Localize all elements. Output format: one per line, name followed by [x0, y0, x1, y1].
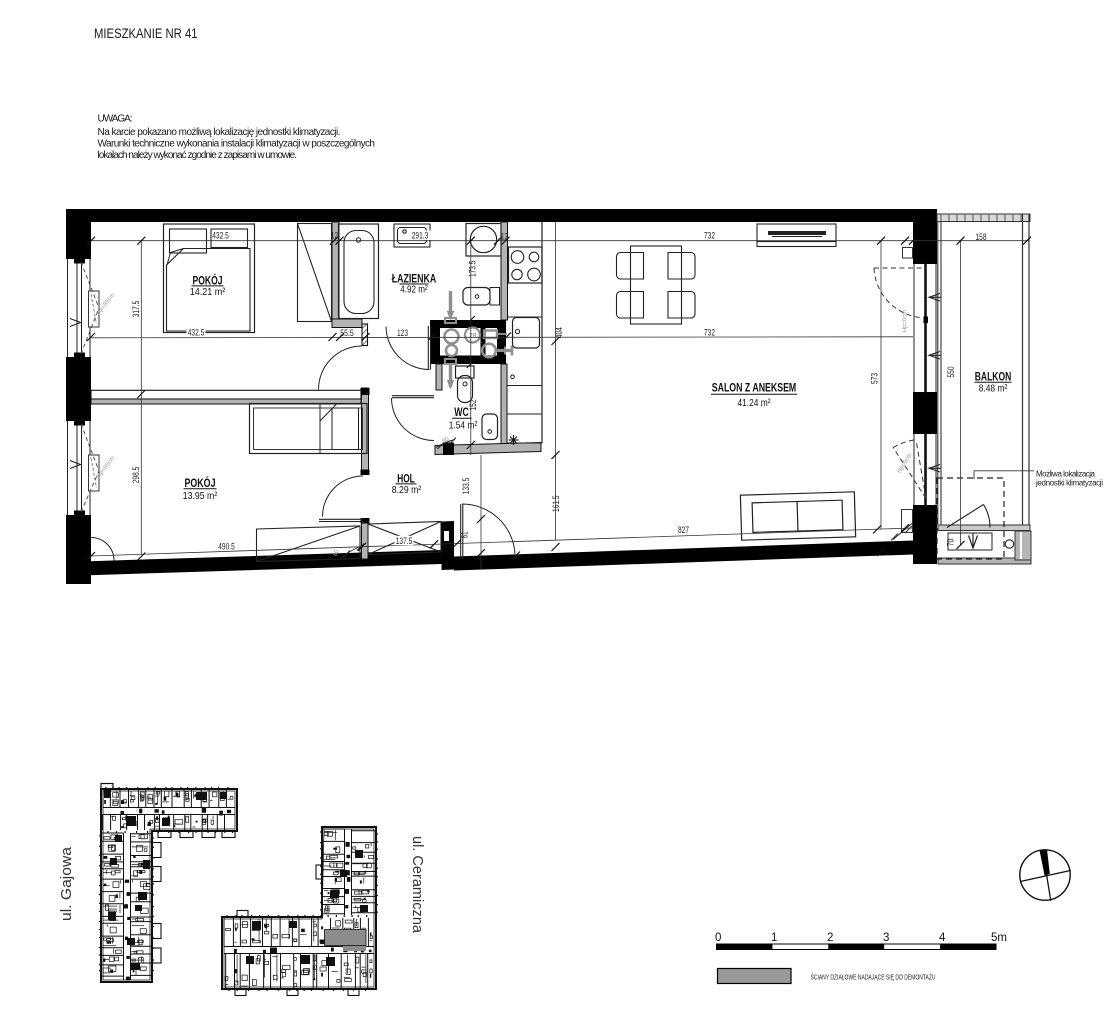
svg-text:137.5: 137.5 [396, 536, 413, 546]
svg-text:732: 732 [704, 328, 715, 338]
svg-text:732: 732 [704, 230, 715, 240]
svg-text:Na karcie pokazano możliwą lok: Na karcie pokazano możliwą lokalizację j… [98, 127, 341, 138]
svg-text:573: 573 [870, 373, 880, 384]
svg-text:12: 12 [331, 231, 338, 241]
svg-text:133.5: 133.5 [461, 478, 471, 495]
svg-text:70: 70 [946, 539, 956, 547]
svg-text:12: 12 [501, 232, 508, 242]
svg-text:41.24 m²: 41.24 m² [738, 397, 771, 409]
svg-text:158: 158 [976, 232, 987, 242]
svg-text:298.5: 298.5 [131, 467, 141, 484]
svg-text:3: 3 [883, 932, 889, 944]
svg-text:61: 61 [460, 532, 470, 539]
svg-text:4: 4 [939, 932, 946, 944]
svg-text:317.5: 317.5 [131, 301, 141, 318]
svg-text:UWAGA:: UWAGA: [98, 114, 133, 125]
svg-text:827: 827 [678, 525, 689, 535]
svg-text:5m: 5m [991, 932, 1007, 944]
svg-text:8.29 m²: 8.29 m² [392, 484, 422, 496]
svg-text:550: 550 [946, 367, 956, 378]
svg-text:1: 1 [771, 932, 777, 944]
svg-text:152: 152 [468, 400, 478, 411]
svg-text:ul. Gajowa: ul. Gajowa [59, 846, 75, 921]
svg-text:161.5: 161.5 [551, 495, 561, 512]
svg-text:ul. Ceramiczna: ul. Ceramiczna [409, 836, 425, 934]
svg-text:55.5: 55.5 [340, 328, 354, 338]
svg-text:432.5: 432.5 [212, 231, 229, 241]
svg-text:13.95 m²: 13.95 m² [183, 490, 218, 502]
svg-text:291.3: 291.3 [412, 231, 429, 241]
svg-text:14.21 m²: 14.21 m² [190, 286, 226, 298]
svg-text:29: 29 [469, 333, 477, 340]
svg-text:Hp=0cm: Hp=0cm [903, 310, 909, 333]
svg-text:MIESZKANIE NR 41: MIESZKANIE NR 41 [94, 26, 198, 41]
svg-text:ŚCIANY DZIAŁOWE NADAJĄCE SIĘ D: ŚCIANY DZIAŁOWE NADAJĄCE SIĘ DO DEMONTAŻ… [811, 973, 936, 982]
svg-text:4.92 m²: 4.92 m² [400, 284, 428, 296]
svg-text:lokalach należy wykonać zgodni: lokalach należy wykonać zgodnie z zapisa… [98, 150, 298, 161]
svg-text:432.5: 432.5 [188, 327, 205, 337]
svg-text:173.5: 173.5 [467, 261, 477, 278]
svg-text:490.5: 490.5 [218, 542, 235, 552]
svg-text:POKÓJ: POKÓJ [185, 477, 216, 490]
svg-text:jednostki klimatyzacji: jednostki klimatyzacji [1035, 478, 1103, 487]
svg-text:404: 404 [554, 327, 564, 338]
svg-text:Możliwa lokalizacja: Możliwa lokalizacja [1036, 470, 1096, 479]
svg-text:2: 2 [827, 932, 833, 944]
svg-text:8.48 m²: 8.48 m² [979, 383, 1008, 395]
svg-text:123: 123 [397, 328, 408, 338]
svg-text:1.54 m²: 1.54 m² [449, 420, 478, 432]
svg-text:Warunki techniczne wykonania i: Warunki techniczne wykonania instalacji … [98, 138, 375, 149]
svg-text:WC: WC [454, 407, 469, 419]
svg-text:0: 0 [715, 932, 721, 944]
svg-text:SALON Z ANEKSEM: SALON Z ANEKSEM [712, 383, 797, 395]
